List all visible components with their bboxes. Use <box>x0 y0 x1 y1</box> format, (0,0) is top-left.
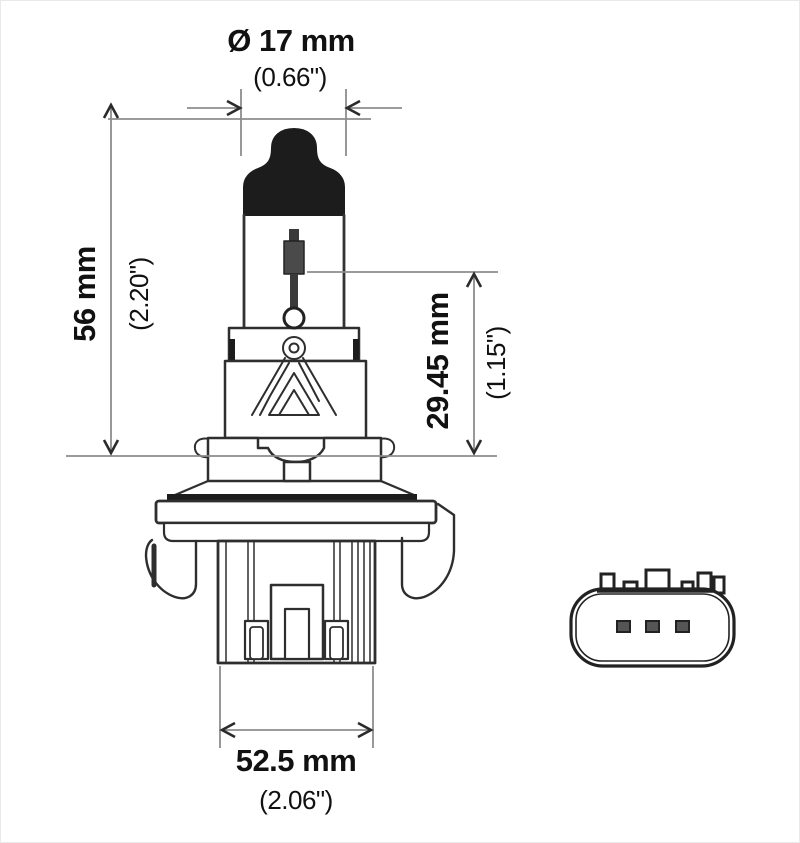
pocket-inner <box>285 609 309 659</box>
slot-right-inner <box>330 627 343 659</box>
dim-right-imperial-label: (1.15") <box>480 253 512 473</box>
connector-pin-3 <box>676 621 689 632</box>
dim-top-imperial-label: (0.66") <box>140 62 440 92</box>
dim-top-metric-label: Ø 17 mm <box>141 23 441 59</box>
dim-bottom-metric-label: 52.5 mm <box>146 743 446 779</box>
bulb-side-view <box>146 129 454 663</box>
bulb-black-tip <box>244 129 344 215</box>
keying-tab-square <box>284 462 310 481</box>
taper-left <box>175 481 208 495</box>
dim-left-metric-label: 56 mm <box>67 184 103 404</box>
filament-assembly <box>284 229 304 328</box>
clip-head <box>283 337 305 359</box>
bulb-dimensional-drawing <box>1 1 800 843</box>
technical-drawing-canvas: Ø 17 mm (0.66") 56 mm (2.20") 29.45 mm (… <box>0 0 800 843</box>
wing-left <box>146 540 196 598</box>
filament-support-rod <box>290 274 298 308</box>
taper-right <box>381 481 414 495</box>
connector-end-view <box>571 570 734 666</box>
flange-disc <box>156 501 436 523</box>
glass-bead <box>284 308 304 328</box>
dim-bottom <box>220 666 373 748</box>
dim-left-imperial-label: (2.20") <box>123 184 155 404</box>
connector-pin-1 <box>617 621 630 632</box>
flange-underside <box>164 523 429 541</box>
collar-tick-left <box>229 339 235 363</box>
dim-bottom-imperial-label: (2.06") <box>146 785 446 815</box>
dim-right-metric-label: 29.45 mm <box>420 251 456 471</box>
filament-shield <box>284 241 304 274</box>
connector-pin-2 <box>646 621 659 632</box>
slot-left-inner <box>250 627 263 659</box>
collar-tick-right <box>353 339 359 363</box>
